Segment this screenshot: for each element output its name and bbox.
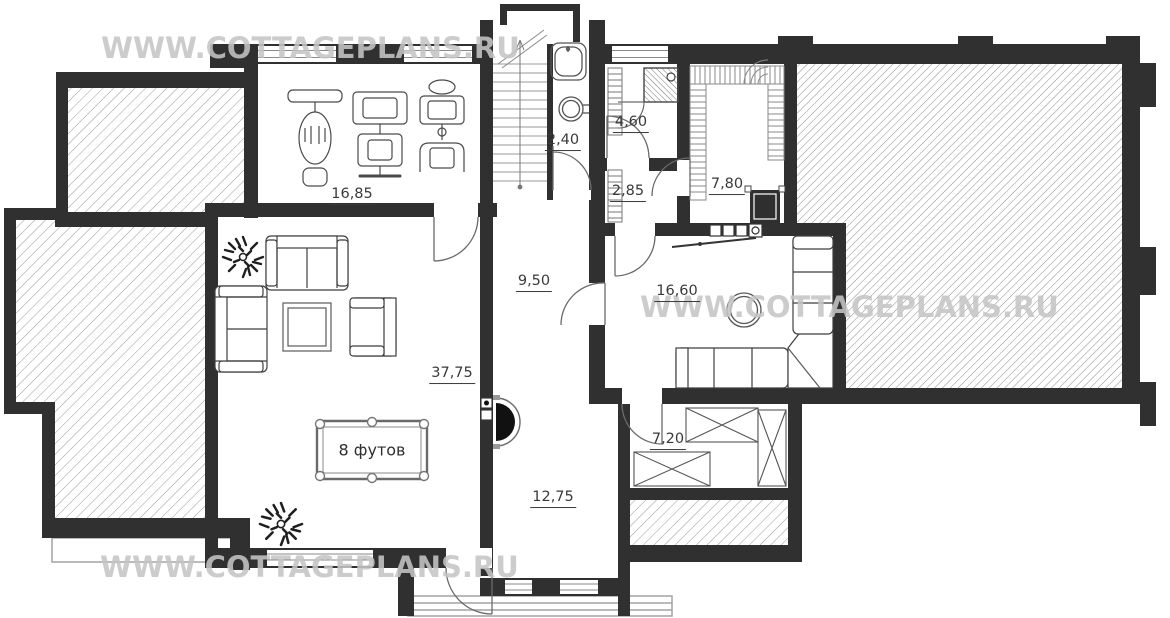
- rowing-machine-icon: [420, 80, 464, 172]
- room-area-label-hall: 9,50: [516, 274, 552, 292]
- room-area-label-shower-room: 4,60: [613, 115, 649, 133]
- watermark: WWW.COTTAGEPLANS.RU: [640, 290, 1059, 324]
- sauna-lockers: [710, 224, 762, 237]
- room-area-label-wc: 2,85: [610, 184, 646, 202]
- room-area-label-lounge: 16,60: [654, 284, 700, 302]
- armchair: [350, 298, 396, 356]
- watermark: WWW.COTTAGEPLANS.RU: [100, 550, 519, 584]
- room-area-label-entrance-hall: 12,75: [530, 490, 576, 508]
- weight-machine-icon: [353, 92, 407, 176]
- billiard-table-size-label: 8 футов: [339, 441, 406, 460]
- room-area-label-gym: 16,85: [329, 187, 375, 205]
- room-area-label-storage: 7,20: [650, 432, 686, 450]
- sofa: [215, 286, 267, 372]
- billiard-cue-icon: [672, 238, 756, 247]
- sofa: [266, 236, 348, 290]
- plant-icon: [223, 237, 263, 277]
- sauna-stove-icon: [745, 186, 785, 223]
- watermark: WWW.COTTAGEPLANS.RU: [101, 31, 520, 65]
- floor-plan-page: WWW.COTTAGEPLANS.RU WWW.COTTAGEPLANS.RU …: [0, 0, 1170, 618]
- coffee-table: [283, 303, 331, 351]
- room-area-label-sauna: 7,80: [709, 177, 745, 195]
- plant-icon: [260, 503, 302, 545]
- exercise-bike-icon: [288, 90, 342, 186]
- hatched-small-room: [630, 500, 788, 545]
- room-area-label-living-room: 37,75: [429, 366, 475, 384]
- room-area-label-bathroom: 2,40: [545, 133, 581, 151]
